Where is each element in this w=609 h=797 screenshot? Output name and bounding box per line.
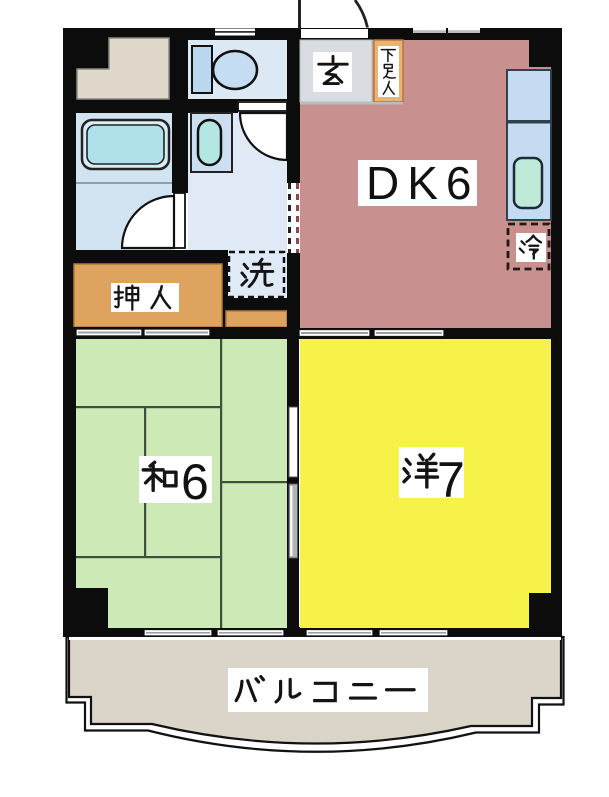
svg-text:6: 6	[181, 454, 209, 510]
svg-text:7: 7	[437, 452, 465, 508]
svg-text:DK6: DK6	[366, 157, 479, 209]
